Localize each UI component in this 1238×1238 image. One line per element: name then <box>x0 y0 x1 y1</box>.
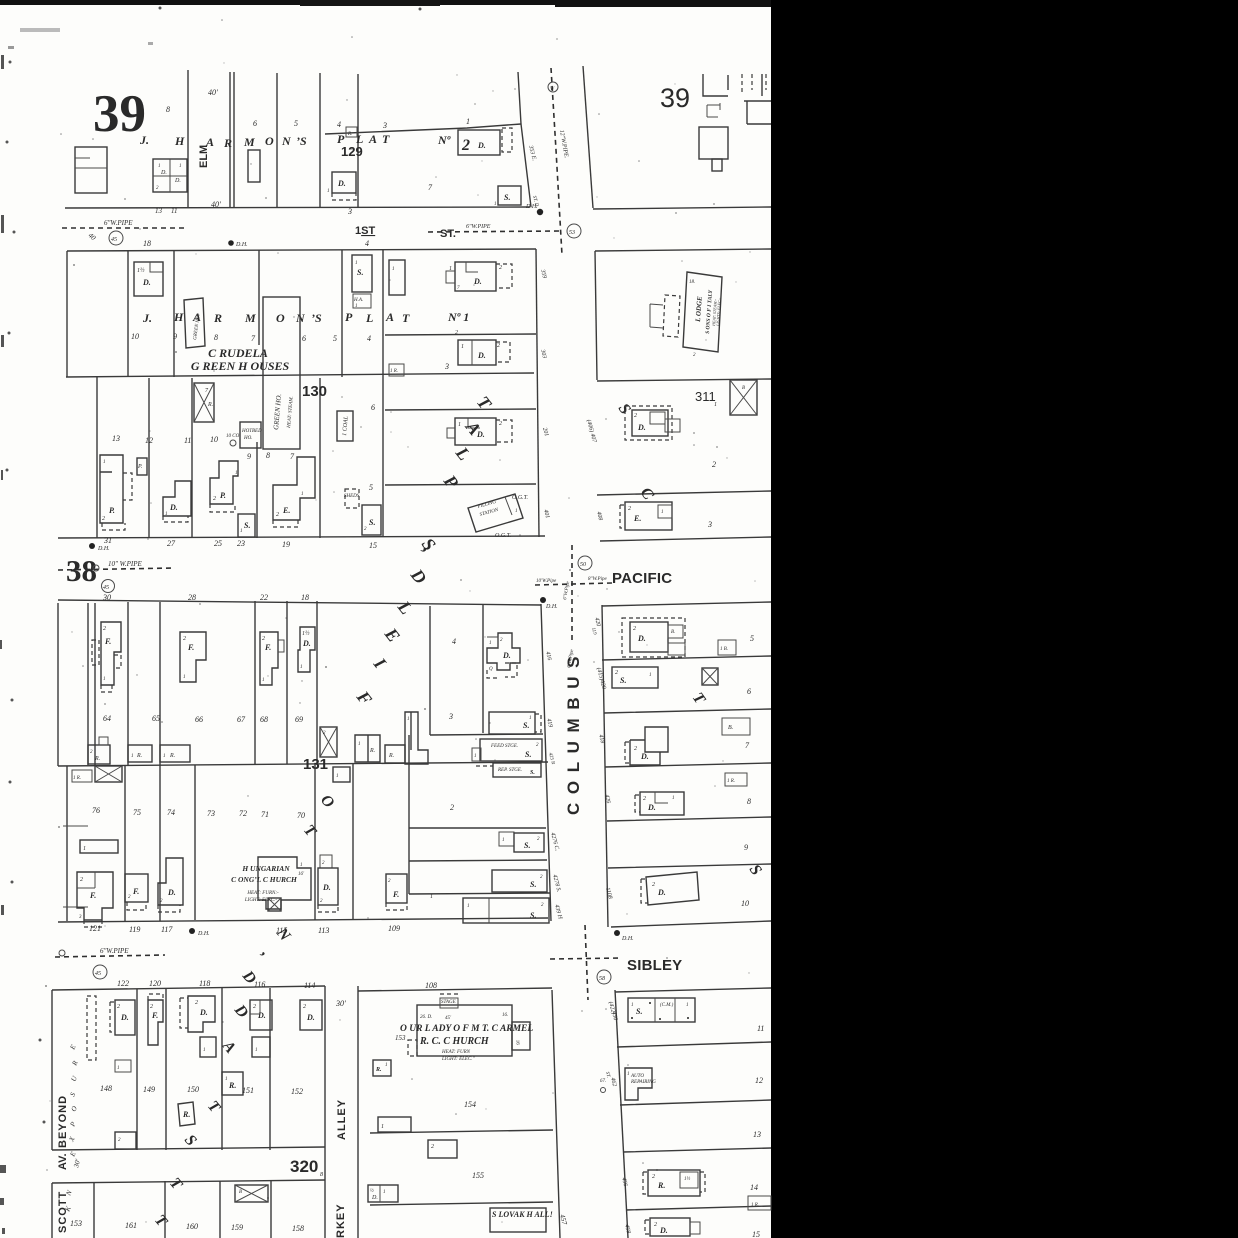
svg-text:13: 13 <box>753 1130 761 1139</box>
svg-text:6: 6 <box>371 403 375 412</box>
svg-text:8: 8 <box>266 451 270 460</box>
svg-text:B.: B. <box>671 630 675 635</box>
svg-text:1: 1 <box>381 1124 384 1130</box>
svg-text:D.: D. <box>637 634 646 643</box>
svg-text:1: 1 <box>407 717 410 722</box>
svg-text:67.: 67. <box>600 1079 606 1084</box>
svg-text:320: 320 <box>290 1157 318 1176</box>
svg-text:2: 2 <box>103 626 106 632</box>
svg-text:18.: 18. <box>689 280 695 285</box>
svg-text:F.: F. <box>187 643 194 652</box>
svg-text:S.: S. <box>523 721 529 730</box>
svg-text:H: H <box>173 310 184 324</box>
svg-text:158: 158 <box>292 1224 304 1233</box>
svg-text:5: 5 <box>294 119 298 128</box>
svg-text:5: 5 <box>333 334 337 343</box>
svg-text:D.H.: D.H. <box>545 604 558 610</box>
svg-text:4: 4 <box>367 334 371 343</box>
svg-text:D.: D. <box>637 423 646 432</box>
svg-text:O.G.T.: O.G.T. <box>512 495 528 501</box>
svg-text:10: 10 <box>210 435 218 444</box>
svg-text:2: 2 <box>102 516 105 522</box>
svg-text:F.: F. <box>392 890 399 899</box>
svg-text:2: 2 <box>615 670 618 676</box>
svg-text:2: 2 <box>150 1004 153 1010</box>
svg-text:152: 152 <box>291 1087 303 1096</box>
svg-text:2: 2 <box>213 496 216 502</box>
svg-text:6: 6 <box>253 119 257 128</box>
svg-text:75: 75 <box>133 808 141 817</box>
svg-text:S.: S. <box>620 676 626 685</box>
svg-text:N: N <box>281 134 292 148</box>
svg-text:AUTO: AUTO <box>630 1074 644 1079</box>
svg-text:’S: ’S <box>311 311 322 325</box>
svg-text:16.: 16. <box>502 1013 508 1018</box>
svg-text:Q: Q <box>489 667 493 672</box>
svg-text:30′: 30′ <box>335 999 346 1008</box>
svg-text:22: 22 <box>260 593 268 602</box>
svg-text:9: 9 <box>744 843 748 852</box>
svg-text:R.: R. <box>375 1067 382 1073</box>
svg-text:8: 8 <box>747 797 751 806</box>
svg-text:116: 116 <box>254 980 265 989</box>
svg-text:F.: F. <box>264 643 271 652</box>
svg-text:76: 76 <box>92 806 100 815</box>
svg-text:6: 6 <box>747 687 751 696</box>
svg-text:D.: D. <box>120 1013 129 1022</box>
svg-text:REPAIRING: REPAIRING <box>630 1080 656 1085</box>
svg-text:10: 10 <box>741 899 749 908</box>
svg-text:2: 2 <box>628 506 631 512</box>
svg-text:2: 2 <box>499 421 502 427</box>
svg-text:18: 18 <box>143 239 151 248</box>
svg-text:1 R.: 1 R. <box>751 1203 759 1208</box>
svg-text:45: 45 <box>111 236 117 243</box>
svg-text:1: 1 <box>183 675 186 680</box>
svg-text:3: 3 <box>448 712 453 721</box>
svg-text:1: 1 <box>158 164 161 169</box>
svg-text:S.: S. <box>504 193 510 202</box>
svg-text:10″ W.PIPE: 10″ W.PIPE <box>108 560 142 568</box>
svg-text:S LOVAK H ALL!: S LOVAK H ALL! <box>492 1210 553 1219</box>
svg-text:10 CO: 10 CO <box>226 434 240 439</box>
svg-text:P.: P. <box>109 506 115 515</box>
svg-text:S.: S. <box>524 841 530 850</box>
svg-text:8: 8 <box>166 105 170 114</box>
svg-text:148: 148 <box>100 1084 112 1093</box>
svg-text:D.: D. <box>337 179 346 188</box>
svg-text:½: ½ <box>370 1189 374 1194</box>
svg-text:114: 114 <box>304 981 315 990</box>
svg-text:118: 118 <box>199 979 210 988</box>
svg-text:153: 153 <box>395 1034 406 1042</box>
svg-text:1½: 1½ <box>302 630 310 637</box>
svg-text:1: 1 <box>336 774 339 779</box>
svg-text:STAGE: STAGE <box>441 1000 456 1005</box>
svg-text:2: 2 <box>497 343 500 349</box>
svg-text:O UR L ADY O F M T. C ARMEL: O UR L ADY O F M T. C ARMEL <box>400 1024 533 1034</box>
svg-text:S.: S. <box>530 911 536 920</box>
svg-text:R.: R. <box>207 402 213 408</box>
svg-text:1: 1 <box>461 344 464 350</box>
svg-text:6: 6 <box>302 334 306 343</box>
svg-text:D.H.: D.H. <box>197 931 210 937</box>
svg-text:A: A <box>385 310 394 324</box>
svg-text:120: 120 <box>149 979 161 988</box>
svg-text:122: 122 <box>117 979 129 988</box>
svg-text:1: 1 <box>327 189 330 194</box>
svg-text:1: 1 <box>430 894 433 900</box>
svg-text:311: 311 <box>695 389 716 404</box>
svg-text:3: 3 <box>347 207 352 216</box>
svg-text:4: 4 <box>365 239 369 248</box>
svg-text:AV.: AV. <box>57 1153 69 1170</box>
svg-text:1½: 1½ <box>684 1177 691 1182</box>
svg-text:D.: D. <box>174 178 181 184</box>
svg-text:L: L <box>365 311 373 325</box>
svg-text:Nº 1: Nº 1 <box>447 310 469 324</box>
svg-text:11: 11 <box>757 1024 764 1033</box>
svg-text:154: 154 <box>464 1100 476 1109</box>
svg-text:70: 70 <box>297 811 305 820</box>
svg-text:(C.M.): (C.M.) <box>660 1003 674 1008</box>
svg-text:T: T <box>402 311 410 325</box>
svg-text:’S: ’S <box>296 134 307 148</box>
svg-text:HOTBED: HOTBED <box>241 429 262 434</box>
svg-text:1: 1 <box>502 838 505 843</box>
svg-text:2: 2 <box>117 1004 120 1010</box>
svg-text:H.A.: H.A. <box>353 298 363 303</box>
svg-text:1: 1 <box>672 796 675 801</box>
svg-text:D.H.: D.H. <box>525 204 538 210</box>
svg-text:2: 2 <box>652 882 655 888</box>
svg-text:23: 23 <box>237 539 245 548</box>
svg-text:1: 1 <box>494 202 497 207</box>
svg-text:45′: 45′ <box>445 1016 452 1021</box>
svg-text:6″W.PIPE: 6″W.PIPE <box>466 224 491 230</box>
svg-text:H: H <box>174 134 185 148</box>
svg-text:1: 1 <box>515 509 518 514</box>
svg-text:1: 1 <box>529 716 532 721</box>
svg-text:P.: P. <box>220 491 226 500</box>
svg-text:C RUDELA: C RUDELA <box>208 346 268 360</box>
svg-text:S.: S. <box>525 750 531 759</box>
svg-text:14: 14 <box>750 1183 758 1192</box>
svg-text:25: 25 <box>214 539 222 548</box>
svg-text:5: 5 <box>750 634 754 643</box>
svg-text:R.: R. <box>169 753 175 759</box>
svg-text:8: 8 <box>214 333 218 342</box>
svg-text:19: 19 <box>282 540 290 549</box>
svg-text:1: 1 <box>262 678 265 683</box>
svg-text:P: P <box>345 310 353 324</box>
svg-text:8″W.Pipe: 8″W.Pipe <box>588 577 607 582</box>
svg-text:1: 1 <box>358 742 361 747</box>
svg-text:R.: R. <box>228 1081 236 1090</box>
svg-text:153: 153 <box>70 1219 82 1228</box>
svg-text:D.: D. <box>477 141 486 150</box>
svg-text:1: 1 <box>385 1063 388 1068</box>
svg-text:1: 1 <box>165 512 168 517</box>
svg-text:1 R.: 1 R. <box>73 776 81 781</box>
svg-text:2: 2 <box>634 746 637 752</box>
svg-text:66: 66 <box>195 715 203 724</box>
svg-text:64: 64 <box>103 714 111 723</box>
svg-text:31: 31 <box>103 536 112 545</box>
svg-text:1: 1 <box>489 641 492 646</box>
svg-text:119: 119 <box>129 925 140 934</box>
svg-text:2: 2 <box>450 803 454 812</box>
svg-text:6″W.PIPE: 6″W.PIPE <box>104 219 133 227</box>
svg-text:117: 117 <box>161 925 173 934</box>
svg-text:D.: D. <box>160 170 167 176</box>
svg-text:1½: 1½ <box>137 267 145 274</box>
svg-text:10′W.Pipe: 10′W.Pipe <box>536 579 557 584</box>
svg-text:13: 13 <box>155 207 163 215</box>
svg-text:1: 1 <box>714 402 717 408</box>
svg-text:5: 5 <box>369 483 373 492</box>
svg-text:65: 65 <box>152 714 160 723</box>
svg-text:1: 1 <box>661 510 664 515</box>
svg-text:71: 71 <box>261 810 269 819</box>
svg-text:13: 13 <box>112 434 120 443</box>
svg-text:ST.: ST. <box>440 228 456 240</box>
svg-text:161: 161 <box>125 1221 137 1230</box>
svg-text:E.: E. <box>282 506 290 515</box>
svg-text:1: 1 <box>458 422 461 428</box>
svg-text:2: 2 <box>499 265 502 271</box>
svg-text:1: 1 <box>179 164 182 169</box>
svg-text:109: 109 <box>388 924 400 933</box>
svg-text:3: 3 <box>444 362 449 371</box>
svg-text:72: 72 <box>239 809 247 818</box>
svg-text:40′: 40′ <box>211 200 221 209</box>
svg-text:12: 12 <box>755 1076 763 1085</box>
svg-text:1: 1 <box>466 117 470 126</box>
svg-text:9: 9 <box>173 332 177 341</box>
svg-text:2: 2 <box>654 1222 657 1228</box>
svg-text:D.H.: D.H. <box>621 936 634 942</box>
svg-text:SHEDS: SHEDS <box>344 494 360 499</box>
svg-text:149: 149 <box>143 1085 155 1094</box>
svg-text:67: 67 <box>237 715 246 724</box>
svg-text:50: 50 <box>580 562 586 568</box>
svg-text:D.: D. <box>322 883 331 892</box>
svg-text:1: 1 <box>467 904 470 909</box>
svg-text:S.: S. <box>357 268 363 277</box>
svg-text:155: 155 <box>472 1171 484 1180</box>
svg-text:D.H.: D.H. <box>97 546 110 552</box>
svg-text:1: 1 <box>301 492 304 497</box>
svg-text:2: 2 <box>652 1174 655 1180</box>
svg-text:1: 1 <box>649 673 652 678</box>
svg-text:O.G.T.: O.G.T. <box>495 533 511 539</box>
svg-text:27: 27 <box>167 539 176 548</box>
svg-text:RKEY: RKEY <box>335 1203 347 1238</box>
svg-text:D.: D. <box>657 888 666 897</box>
svg-text:D.: D. <box>647 803 656 812</box>
svg-text:1: 1 <box>235 471 238 476</box>
svg-text:18: 18 <box>301 593 309 602</box>
svg-text:SIBLEY: SIBLEY <box>627 957 682 974</box>
svg-text:COLUMBUS: COLUMBUS <box>564 648 583 815</box>
svg-text:D.: D. <box>167 888 176 897</box>
svg-text:LIGHT: ELEC.″: LIGHT: ELEC.″ <box>441 1057 476 1062</box>
svg-text:R. C. C HURCH: R. C. C HURCH <box>419 1036 490 1047</box>
svg-text:F.: F. <box>132 887 139 896</box>
svg-text:2: 2 <box>253 1004 256 1010</box>
svg-text:160: 160 <box>186 1222 198 1231</box>
svg-text:G REEN H OUSES: G REEN H OUSES <box>191 359 290 373</box>
svg-text:1: 1 <box>449 266 452 272</box>
svg-text:LIGHT: ELEC.-: LIGHT: ELEC.- <box>244 898 278 903</box>
svg-text:R.: R. <box>369 748 375 754</box>
svg-text:1: 1 <box>474 754 477 759</box>
svg-text:1: 1 <box>240 529 243 534</box>
svg-text:2: 2 <box>455 330 458 336</box>
svg-text:1: 1 <box>627 1072 630 1077</box>
svg-text:53: 53 <box>569 230 575 236</box>
svg-text:R.: R. <box>182 1110 190 1119</box>
svg-text:D.H.: D.H. <box>235 242 248 248</box>
svg-text:R.: R. <box>136 753 142 759</box>
svg-text:D.: D. <box>169 503 178 512</box>
svg-text:113: 113 <box>318 926 329 935</box>
svg-text:2: 2 <box>80 877 83 883</box>
svg-text:2: 2 <box>712 460 716 469</box>
svg-text:S.: S. <box>636 1007 642 1016</box>
svg-text:1: 1 <box>83 846 86 852</box>
svg-text:Nº: Nº <box>437 133 451 147</box>
svg-text:C ONG’L C HURCH: C ONG’L C HURCH <box>231 875 298 884</box>
svg-text:D.: D. <box>659 1226 668 1235</box>
svg-text:R.: R. <box>657 1181 665 1190</box>
svg-text:9: 9 <box>247 452 251 461</box>
svg-text:HEAT: FURN: HEAT: FURN <box>441 1050 471 1055</box>
svg-text:16′: 16′ <box>298 872 305 877</box>
svg-text:1 R.: 1 R. <box>390 369 398 374</box>
svg-text:26. D.: 26. D. <box>420 1015 432 1020</box>
svg-text:E.: E. <box>633 514 641 523</box>
svg-text:D.: D. <box>257 1011 266 1020</box>
svg-text:F.: F. <box>151 1011 158 1020</box>
svg-text:73: 73 <box>207 809 215 818</box>
svg-text:F.: F. <box>104 637 111 646</box>
svg-text:151: 151 <box>242 1086 254 1095</box>
svg-text:108: 108 <box>425 981 437 990</box>
svg-text:45: 45 <box>95 970 101 977</box>
svg-text:REP. STGE.: REP. STGE. <box>497 768 522 773</box>
svg-text:10: 10 <box>131 332 139 341</box>
svg-text:2: 2 <box>431 1144 434 1150</box>
svg-text:129: 129 <box>341 144 363 159</box>
svg-text:2: 2 <box>633 626 636 632</box>
svg-text:1: 1 <box>103 460 106 465</box>
svg-text:45: 45 <box>103 584 109 591</box>
svg-text:S.: S. <box>244 521 250 530</box>
svg-text:S.: S. <box>530 880 536 889</box>
svg-text:D.: D. <box>302 639 311 648</box>
svg-text:68: 68 <box>260 715 268 724</box>
svg-text:S.: S. <box>530 770 535 776</box>
svg-text:1ST: 1ST <box>355 225 375 237</box>
svg-text:D.: D. <box>640 752 649 761</box>
svg-text:11: 11 <box>184 436 191 445</box>
svg-text:8: 8 <box>320 1172 323 1178</box>
svg-text:D.: D. <box>473 277 482 286</box>
svg-text:R.: R. <box>347 132 352 137</box>
svg-text:1: 1 <box>392 267 395 272</box>
svg-text:2: 2 <box>303 1004 306 1010</box>
svg-text:3: 3 <box>382 121 387 130</box>
svg-text:4: 4 <box>452 637 456 646</box>
svg-text:2: 2 <box>195 1000 198 1006</box>
svg-text:T: T <box>382 132 390 146</box>
svg-text:39: 39 <box>660 83 690 113</box>
svg-text:B: B <box>239 1190 242 1195</box>
svg-text:1: 1 <box>300 665 303 670</box>
svg-text:2: 2 <box>262 636 265 642</box>
svg-text:1: 1 <box>355 261 358 266</box>
svg-text:1: 1 <box>103 677 106 682</box>
svg-text:1: 1 <box>203 1048 206 1053</box>
svg-text:69: 69 <box>295 715 303 724</box>
svg-text:P.: P. <box>137 464 142 470</box>
svg-text:R: R <box>223 136 232 150</box>
svg-text:S.: S. <box>369 518 375 527</box>
svg-text:O: O <box>276 311 285 325</box>
svg-text:A: A <box>368 132 377 146</box>
svg-text:4: 4 <box>337 120 341 129</box>
svg-text:6″W.PIPE: 6″W.PIPE <box>100 947 129 955</box>
svg-text:1: 1 <box>631 1003 634 1008</box>
svg-text:150: 150 <box>187 1085 199 1094</box>
svg-text:15: 15 <box>369 541 377 550</box>
svg-text:2: 2 <box>276 512 279 518</box>
svg-text:1: 1 <box>383 1190 386 1195</box>
svg-text:B.: B. <box>728 725 733 731</box>
svg-text:3: 3 <box>707 520 712 529</box>
svg-text:R.: R. <box>94 756 100 762</box>
svg-text:159: 159 <box>231 1223 243 1232</box>
svg-text:1: 1 <box>686 1003 689 1008</box>
svg-text:1: 1 <box>131 754 134 759</box>
svg-text:R: R <box>213 311 222 325</box>
svg-text:D.: D. <box>477 351 486 360</box>
svg-text:D.: D. <box>142 278 151 287</box>
svg-text:FEED STGE.: FEED STGE. <box>490 744 518 749</box>
svg-text:D.: D. <box>306 1013 315 1022</box>
svg-text:D.: D. <box>502 651 511 660</box>
svg-text:39: 39 <box>93 85 146 143</box>
svg-text:40′: 40′ <box>208 88 218 97</box>
svg-text:O: O <box>265 134 274 148</box>
svg-text:ALLEY: ALLEY <box>336 1099 348 1140</box>
svg-text:1: 1 <box>117 1066 120 1071</box>
svg-text:A: A <box>205 135 214 149</box>
svg-text:30: 30 <box>102 593 111 602</box>
svg-text:11: 11 <box>171 207 177 215</box>
svg-text:1 R.: 1 R. <box>727 779 735 784</box>
svg-text:J.: J. <box>142 311 152 325</box>
svg-text:PACIFIC: PACIFIC <box>612 570 672 587</box>
svg-text:D.: D. <box>199 1008 208 1017</box>
svg-text:HO.: HO. <box>243 436 252 441</box>
svg-text:2: 2 <box>461 137 470 154</box>
svg-text:J.: J. <box>139 133 149 147</box>
svg-text:D.: D. <box>371 1195 378 1201</box>
svg-text:M: M <box>244 311 256 325</box>
